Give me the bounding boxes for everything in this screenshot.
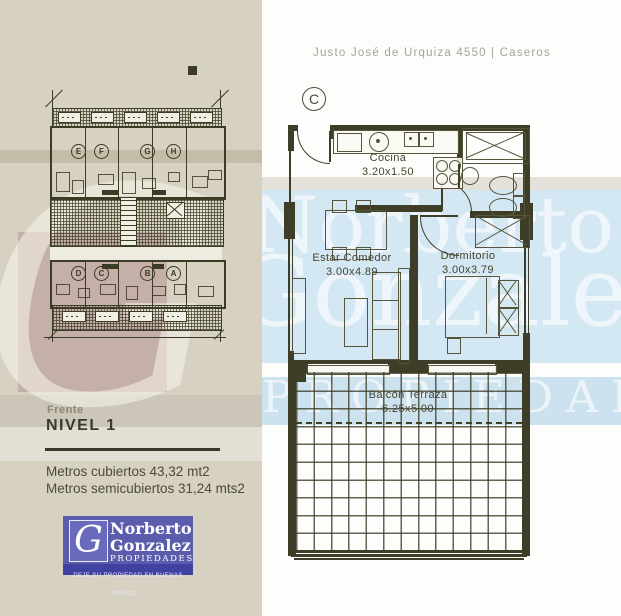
window-line bbox=[288, 239, 290, 351]
balcony-step-line bbox=[291, 554, 527, 557]
room-label-cocina: Cocina bbox=[343, 152, 433, 165]
room-label-balcon: Balcón Terraza bbox=[363, 389, 453, 402]
balcony-wall bbox=[522, 373, 530, 556]
nightstand bbox=[498, 308, 519, 336]
washbasin-wall-line bbox=[458, 164, 460, 188]
toilet-tank bbox=[513, 173, 525, 197]
burner bbox=[436, 173, 448, 185]
flyer-canvas: Norberto Gonzalez PROPIEDADES G Justo Jo… bbox=[0, 0, 621, 616]
sink-drain bbox=[409, 137, 412, 140]
sofa-cushion-line bbox=[372, 329, 399, 330]
room-label-estar: Estar Comedor bbox=[307, 252, 397, 265]
dining-table bbox=[325, 210, 387, 250]
wardrobe bbox=[475, 215, 530, 248]
balcony-wall bbox=[288, 373, 296, 556]
unit-c-floor-plan: Cocina 3.20x1.50 Estar Comedor 3.00x4.89… bbox=[0, 0, 621, 616]
window-line bbox=[528, 247, 529, 333]
wall-shelf bbox=[292, 278, 306, 354]
chair bbox=[356, 200, 371, 213]
room-dims-balcon: 6.25x5.00 bbox=[363, 403, 453, 416]
bathtub-inner bbox=[466, 132, 526, 160]
balcony-step-line bbox=[294, 558, 524, 560]
burner bbox=[436, 160, 448, 172]
wall-segment bbox=[289, 151, 291, 203]
bed-bench bbox=[447, 338, 461, 354]
balcony-step-line bbox=[288, 550, 530, 553]
entry-door-arc bbox=[297, 131, 330, 164]
wall-segment bbox=[410, 215, 418, 363]
sink-drain bbox=[376, 139, 380, 143]
coffee-table bbox=[344, 298, 368, 347]
room-dims-estar: 3.00x4.89 bbox=[307, 266, 397, 279]
window-line bbox=[524, 247, 526, 333]
kitchen-cabinet bbox=[337, 133, 362, 152]
wall-segment bbox=[288, 125, 294, 151]
chair bbox=[332, 200, 347, 213]
nightstand bbox=[498, 280, 519, 308]
balcony-dashed-line bbox=[296, 422, 522, 424]
wall-pillar bbox=[284, 202, 295, 239]
sofa-seat bbox=[372, 272, 401, 360]
washbasin bbox=[461, 167, 479, 185]
room-dims-dormitorio: 3.00x3.79 bbox=[423, 264, 513, 277]
sofa-cushion-line bbox=[372, 300, 399, 301]
room-label-dormitorio: Dormitorio bbox=[423, 250, 513, 263]
bed-pillow-line bbox=[486, 278, 487, 334]
room-dims-cocina: 3.20x1.50 bbox=[343, 166, 433, 179]
bed bbox=[445, 276, 500, 338]
sink-drain bbox=[424, 137, 427, 140]
sofa-back bbox=[398, 268, 410, 364]
